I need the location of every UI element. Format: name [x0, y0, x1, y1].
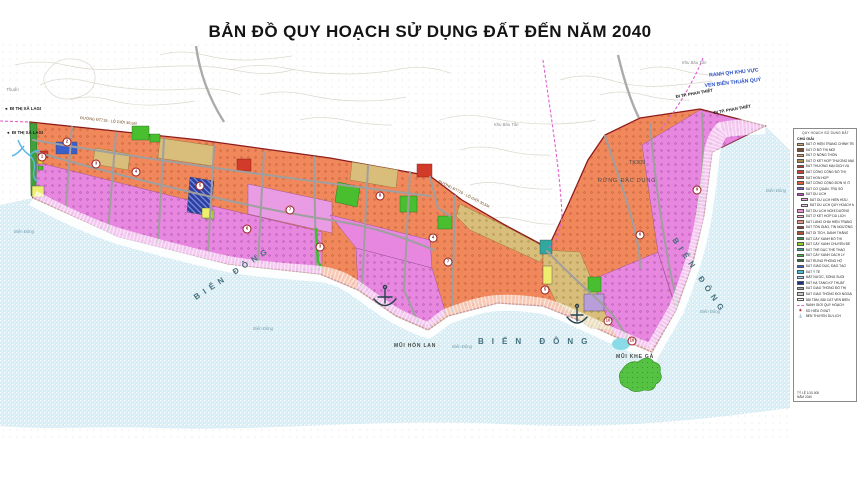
legend-swatch — [801, 204, 808, 207]
legend-label: ĐẤT LÀNG CHÀI HIỆN TRẠNG — [806, 220, 852, 224]
legend-swatch — [797, 154, 804, 157]
legend-swatch — [797, 176, 804, 179]
legend-label: ĐẤT CÔNG CỘNG ĐÔ THỊ — [806, 170, 846, 174]
legend-label: ĐẤT HẠ TẦNG KỸ THUẬT — [806, 281, 845, 285]
legend-item: ĐẤT CÂY XANH CHUYÊN ĐỀ — [797, 241, 854, 247]
legend-swatch — [797, 292, 804, 295]
legend-swatch — [797, 265, 804, 268]
legend-label: BÃI TẮM, BÃI CÁT VEN BIỂN — [806, 298, 850, 302]
legend-swatch — [797, 170, 804, 173]
plot-number-marker: 4 — [429, 234, 438, 243]
legend-swatch — [797, 226, 804, 229]
legend-swatch — [797, 281, 804, 284]
legend-item: ⚓BẾN THUYỀN DU LỊCH — [797, 313, 854, 319]
legend-item: ĐẤT CÔNG CỘNG ĐƠN VỊ Ở — [797, 180, 854, 186]
plot-number-marker: 7 — [444, 258, 453, 267]
legend-label: ĐẤT DU LỊCH HIỆN HỮU — [810, 198, 848, 202]
legend-label: ĐẤT Ở KẾT HỢP THƯƠNG MẠI DỊCH VỤ — [806, 159, 854, 163]
plot-number-marker: 5 — [196, 182, 205, 191]
legend-label: ĐẤT GIÁO DỤC, ĐÀO TẠO — [806, 264, 846, 268]
legend-item: ĐẤT CÔNG CỘNG ĐÔ THỊ — [797, 169, 854, 175]
legend-label: MẶT NƯỚC, SÔNG SUỐI — [806, 275, 845, 279]
plot-number-marker: 7 — [286, 206, 295, 215]
legend-item: ĐẤT GIAO THÔNG ĐÔ THỊ — [797, 286, 854, 292]
legend-swatch — [797, 305, 804, 306]
plot-number-marker: 2 — [63, 138, 72, 147]
legend-panel: QUY HOẠCH SỬ DỤNG ĐẤT CHÚ GIẢI ĐẤT Ở HIỆ… — [793, 128, 857, 402]
legend-swatch: ⚓ — [797, 315, 804, 318]
plot-number-marker: 6 — [636, 231, 645, 240]
legend-title: CHÚ GIẢI — [797, 137, 854, 141]
legend-swatch — [797, 143, 804, 146]
plot-markers-layer: 123456738475691010 — [0, 0, 860, 482]
legend-swatch — [797, 237, 804, 240]
legend-label: ĐẤT DI TÍCH, DANH THẮNG — [806, 231, 849, 235]
plot-number-marker: 4 — [132, 168, 141, 177]
legend-label: ĐẤT HỖN HỢP — [806, 176, 829, 180]
legend-swatch — [797, 193, 804, 196]
legend-label: ĐẤT Y TẾ — [806, 270, 821, 274]
legend-label: ĐẤT THỂ DỤC THỂ THAO — [806, 248, 846, 252]
legend-label: BẾN THUYỀN DU LỊCH — [806, 314, 841, 318]
legend-swatch — [797, 287, 804, 290]
plot-number-marker: 5 — [541, 286, 550, 295]
plot-number-marker: 8 — [376, 192, 385, 201]
legend-label: ĐẤT CÂY XANH CÁCH LY — [806, 253, 845, 257]
legend-swatch — [797, 181, 804, 184]
legend-swatch — [797, 259, 804, 262]
legend-swatch — [797, 231, 804, 234]
legend-swatch — [797, 209, 804, 212]
legend-item: ĐẤT Ở KẾT HỢP DU LỊCH — [797, 214, 854, 220]
plot-number-marker: 1 — [38, 153, 47, 162]
legend-item: ĐẤT DI TÍCH, DANH THẮNG — [797, 230, 854, 236]
plot-number-marker: 10 — [628, 337, 637, 346]
legend-label: ĐẤT CÔNG CỘNG ĐƠN VỊ Ở — [806, 181, 850, 185]
legend-label: ĐẤT Ở NÔNG THÔN — [806, 153, 837, 157]
legend-rows: ĐẤT Ở HIỆN TRẠNG CHỈNH TRANGĐẤT Ở ĐÔ THỊ… — [797, 142, 854, 320]
legend-label: ĐẤT DU LỊCH QUY HOẠCH MỚI — [810, 203, 854, 207]
legend-swatch — [797, 298, 804, 301]
plot-number-marker: 3 — [92, 160, 101, 169]
legend-swatch — [797, 215, 804, 218]
legend-label: ĐẤT Ở HIỆN TRẠNG CHỈNH TRANG — [806, 142, 854, 146]
legend-label: ĐẤT RỪNG PHÒNG HỘ — [806, 259, 842, 263]
legend-item: ĐẤT THƯƠNG MẠI DỊCH VỤ — [797, 164, 854, 170]
legend-swatch — [797, 165, 804, 168]
plot-number-marker: 6 — [243, 225, 252, 234]
legend-label: ĐẤT Ở ĐÔ THỊ MỚI — [806, 148, 836, 152]
legend-label: ĐẤT Ở KẾT HỢP DU LỊCH — [806, 214, 846, 218]
legend-item: ĐẤT DU LỊCH NGHỈ DƯỠNG — [797, 208, 854, 214]
legend-item: BÃI TẮM, BÃI CÁT VEN BIỂN — [797, 297, 854, 303]
legend-swatch — [797, 159, 804, 162]
legend-label: ĐẤT GIAO THÔNG ĐỐI NGOẠI — [806, 292, 853, 296]
legend-label: ĐẤT DU LỊCH — [806, 192, 827, 196]
legend-label: ĐẤT CÂY XANH ĐÔ THỊ — [806, 237, 842, 241]
legend-label: ĐẤT DU LỊCH NGHỈ DƯỠNG — [806, 209, 850, 213]
legend-item: ĐẤT Ở HIỆN TRẠNG CHỈNH TRANG — [797, 142, 854, 148]
legend-swatch — [797, 220, 804, 223]
legend-label: ĐẤT GIAO THÔNG ĐÔ THỊ — [806, 286, 846, 290]
legend-item: ĐẤT GIAO THÔNG ĐỐI NGOẠI — [797, 291, 854, 297]
legend-swatch — [797, 148, 804, 151]
plot-number-marker: 3 — [316, 243, 325, 252]
plot-number-marker: 9 — [693, 186, 702, 195]
legend-label: ĐẤT CÂY XANH CHUYÊN ĐỀ — [806, 242, 851, 246]
legend-item: ĐẤT GIÁO DỤC, ĐÀO TẠO — [797, 264, 854, 270]
legend-swatch — [797, 187, 804, 190]
legend-notes: TỶ LỆ 1/10.000 NĂM 2040 — [797, 391, 854, 399]
legend-swatch — [797, 276, 804, 279]
legend-label: SỐ HIỆU Ô ĐẤT — [806, 309, 831, 313]
legend-label: RANH GIỚI QUY HOẠCH — [806, 303, 844, 307]
legend-item: ĐẤT LÀNG CHÀI HIỆN TRẠNG — [797, 219, 854, 225]
legend-label: ĐẤT THƯƠNG MẠI DỊCH VỤ — [806, 164, 850, 168]
legend-swatch — [797, 242, 804, 245]
legend-swatch — [797, 270, 804, 273]
legend-label: ĐẤT TÔN GIÁO, TÍN NGƯỠNG — [806, 225, 853, 229]
planning-map-page: BẢN ĐỒ QUY HOẠCH SỬ DỤNG ĐẤT ĐẾN NĂM 204… — [0, 0, 860, 482]
legend-swatch — [797, 248, 804, 251]
legend-heading: QUY HOẠCH SỬ DỤNG ĐẤT — [797, 131, 854, 135]
legend-note-year: NĂM 2040 — [797, 395, 854, 399]
legend-swatch — [797, 254, 804, 257]
legend-item: ĐẤT TÔN GIÁO, TÍN NGƯỠNG — [797, 225, 854, 231]
plot-number-marker: 10 — [604, 317, 613, 326]
legend-item: ĐẤT Ở KẾT HỢP THƯƠNG MẠI DỊCH VỤ — [797, 158, 854, 164]
legend-swatch: ◉ — [797, 309, 804, 312]
legend-label: ĐẤT CƠ QUAN, TRỤ SỞ — [806, 187, 844, 191]
legend-swatch — [801, 198, 808, 201]
